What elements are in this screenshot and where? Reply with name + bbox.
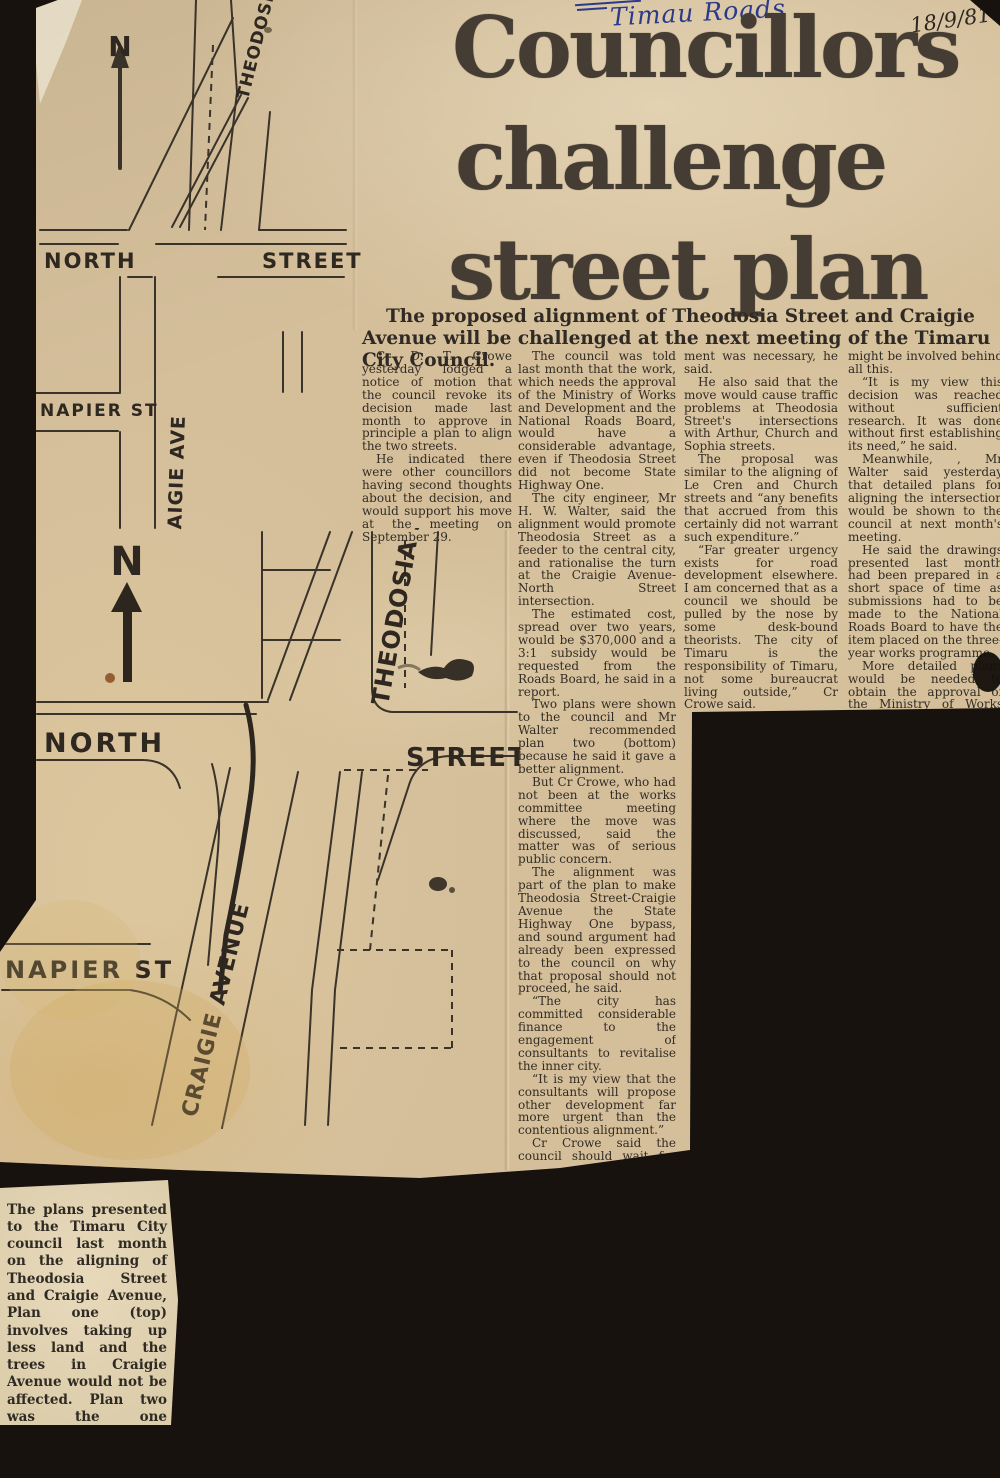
newspaper-clipping: Timau Roads 18/9/81 Councillors challeng… [0, 0, 1000, 1180]
caption-clipping: The plans presented to the Timaru City c… [0, 1180, 180, 1425]
paragraph: “I am extremely suspicious of what motiv… [684, 711, 838, 718]
scrapbook-page: { "annotations": { "handwritten_note": "… [0, 0, 1000, 1425]
map-caption: The plans presented to the Timaru City c… [7, 1202, 167, 1478]
paper-stains [0, 0, 1000, 1180]
